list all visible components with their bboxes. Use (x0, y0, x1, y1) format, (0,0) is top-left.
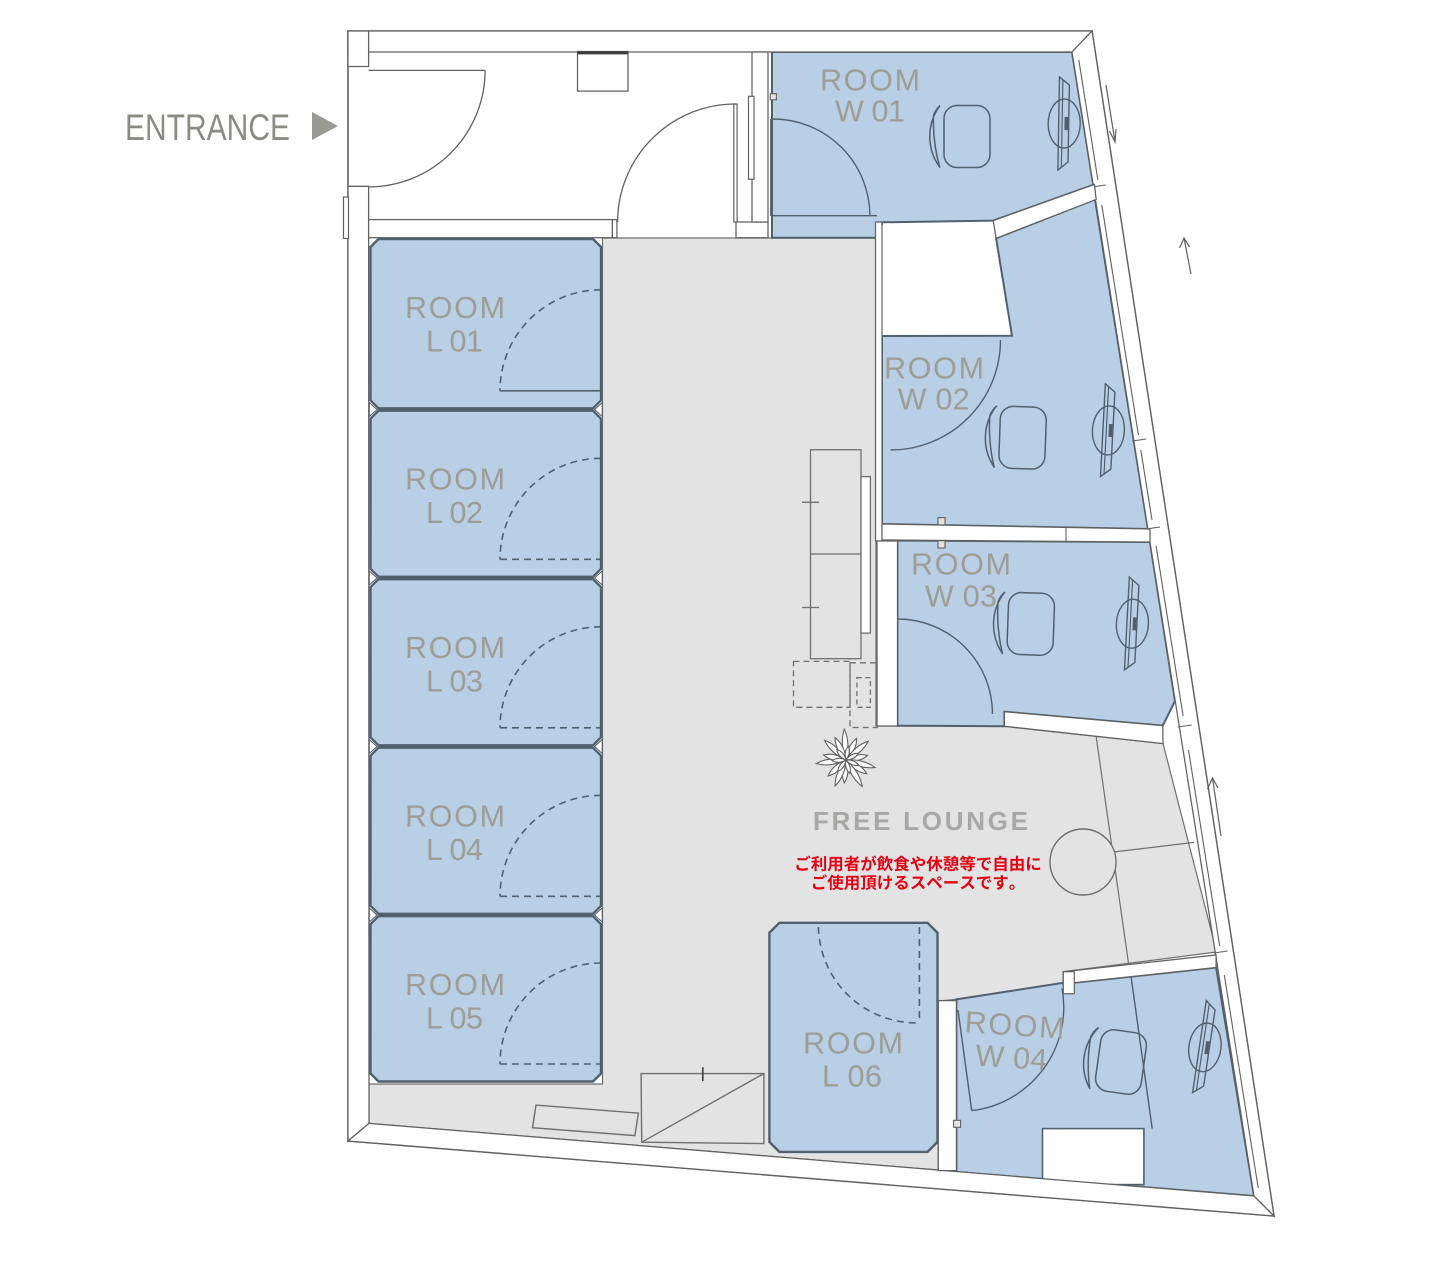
svg-text:W 03: W 03 (925, 579, 997, 613)
svg-text:ENTRANCE: ENTRANCE (125, 107, 290, 148)
svg-text:L 03: L 03 (426, 665, 483, 699)
svg-text:ROOM: ROOM (820, 64, 920, 98)
svg-text:ROOM: ROOM (405, 291, 505, 325)
svg-text:ROOM: ROOM (405, 631, 505, 665)
svg-text:L 04: L 04 (426, 833, 483, 867)
svg-text:L 01: L 01 (426, 325, 483, 359)
svg-text:W 02: W 02 (898, 383, 970, 417)
svg-text:L 05: L 05 (426, 1002, 483, 1036)
svg-text:L 06: L 06 (822, 1059, 882, 1093)
svg-text:ROOM: ROOM (405, 968, 505, 1002)
svg-text:L 02: L 02 (426, 496, 483, 530)
svg-text:W 01: W 01 (835, 94, 905, 128)
svg-text:ROOM: ROOM (405, 800, 505, 834)
svg-text:W 04: W 04 (974, 1038, 1048, 1077)
svg-text:ROOM: ROOM (911, 548, 1011, 582)
svg-text:ROOM: ROOM (803, 1026, 903, 1060)
svg-text:ROOM: ROOM (405, 463, 505, 497)
svg-text:ROOM: ROOM (884, 352, 984, 386)
